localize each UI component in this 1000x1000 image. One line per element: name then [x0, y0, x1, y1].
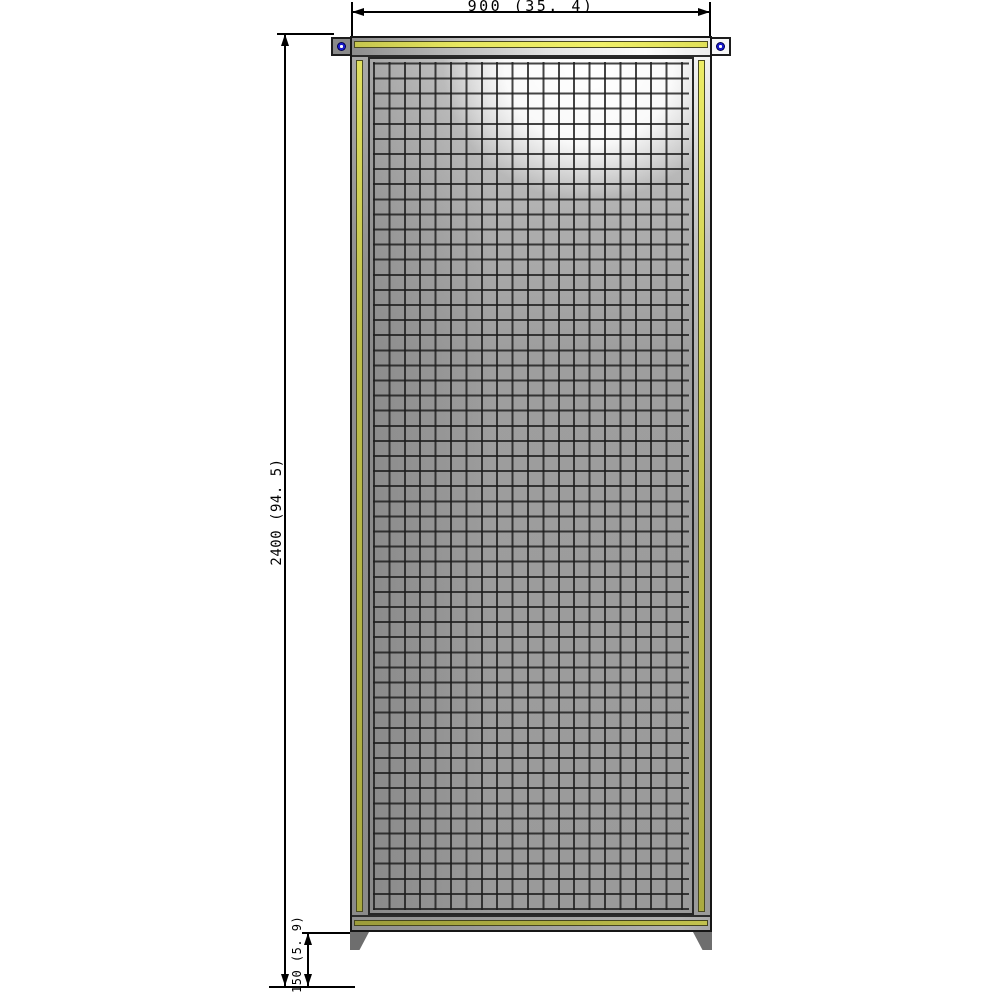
ground-reference-line	[269, 986, 355, 988]
bottom-rail-warning-stripe	[354, 920, 708, 926]
dim-height-label: 2400 (94. 5)	[269, 447, 285, 577]
left-hanger-bracket	[331, 37, 352, 56]
dim-floor-arrow-top	[304, 933, 312, 945]
dim-height-line	[284, 34, 286, 986]
top-rail-warning-stripe	[354, 41, 708, 48]
dim-width-arrow-left	[352, 8, 364, 16]
dim-floor-arrow-bottom	[304, 974, 312, 986]
left-mounting-hole-icon	[337, 42, 346, 51]
dim-height-arrow-bottom	[281, 974, 289, 986]
dim-floor-clearance-label: 150 (5. 9)	[290, 925, 304, 993]
dim-width-arrow-right	[698, 8, 710, 16]
top-rail	[352, 38, 710, 57]
drawing-canvas: 900 (35. 4) 2400 (94. 5) 150 (5. 9)	[0, 0, 1000, 1000]
right-post	[693, 57, 710, 915]
left-post	[352, 57, 369, 915]
dim-width-line	[352, 11, 710, 13]
right-foot	[693, 932, 712, 950]
dim-height-arrow-top	[281, 34, 289, 46]
right-post-warning-stripe	[698, 60, 705, 912]
panel-frame	[350, 36, 712, 932]
bottom-rail	[352, 915, 710, 930]
wire-mesh-grid	[373, 62, 689, 910]
right-hanger-bracket	[710, 37, 731, 56]
wire-mesh-panel	[368, 57, 694, 915]
right-mounting-hole-icon	[716, 42, 725, 51]
left-post-warning-stripe	[356, 60, 363, 912]
left-foot	[350, 932, 369, 950]
